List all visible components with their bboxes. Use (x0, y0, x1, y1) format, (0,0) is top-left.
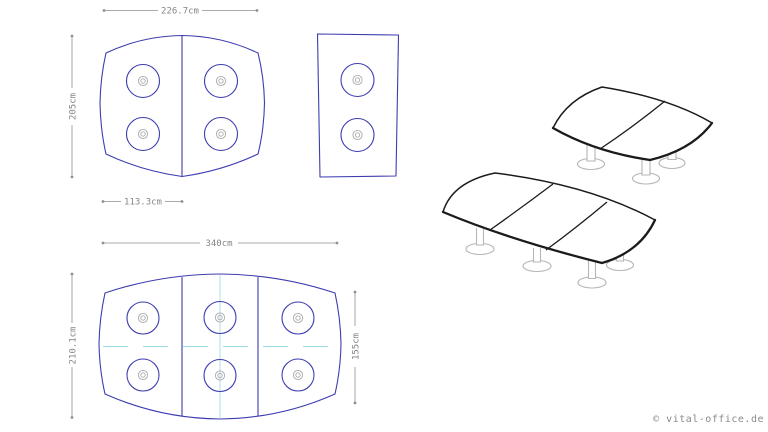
grommet-icon (216, 76, 225, 85)
leg-circle (282, 359, 314, 391)
render-three-segment-3d (443, 173, 655, 288)
render-two-segment-3d (553, 87, 712, 184)
pedestal-column (477, 228, 484, 245)
dimension-label: 205cm (69, 93, 79, 120)
leg-circle (127, 302, 159, 334)
dimension-large-plan-width: 340cm (102, 239, 339, 249)
dimension-plan-height: 205cm (69, 35, 79, 179)
leg-circle (127, 65, 160, 98)
grommet-icon (138, 370, 147, 379)
leg-circle (341, 119, 374, 152)
grommet-icon (138, 129, 147, 138)
leg-circle (127, 118, 160, 151)
leg-circle (282, 302, 314, 334)
plan-single-segment-top-view (318, 34, 399, 177)
technical-drawing-canvas: 226.7cm 205cm 113.3cm (0, 0, 768, 432)
leg-circle (205, 118, 238, 151)
dimension-plan-width: 226.7cm (103, 7, 259, 17)
grommet-icon (353, 130, 362, 139)
dimension-label: 210.1cm (69, 327, 79, 365)
pedestal-column (534, 248, 541, 262)
grommet-icon (353, 75, 362, 84)
dimension-label: 113.3cm (124, 198, 162, 208)
leg-circle (205, 65, 238, 98)
dimension-side-height: 155cm (352, 291, 362, 405)
leg-circle (127, 359, 159, 391)
grommet-icon (138, 313, 147, 322)
dimension-label: 155cm (352, 333, 362, 360)
plan-three-segment-top-view (99, 274, 341, 419)
watermark: © vital-office.de (653, 414, 764, 425)
drawing-svg: 226.7cm 205cm 113.3cm (0, 0, 768, 432)
leg-circle (341, 64, 374, 97)
dimension-segment-width: 113.3cm (102, 198, 184, 208)
dimension-large-plan-height: 210.1cm (69, 273, 79, 419)
grommet-icon (293, 370, 302, 379)
dimension-label: 340cm (205, 239, 232, 249)
plan-two-segment-top-view (100, 36, 265, 177)
grommet-icon (138, 76, 147, 85)
tabletop-outline (553, 87, 712, 160)
panel-outline (318, 34, 399, 177)
grommet-icon (293, 313, 302, 322)
grommet-icon (216, 129, 225, 138)
dimension-label: 226.7cm (161, 7, 199, 17)
